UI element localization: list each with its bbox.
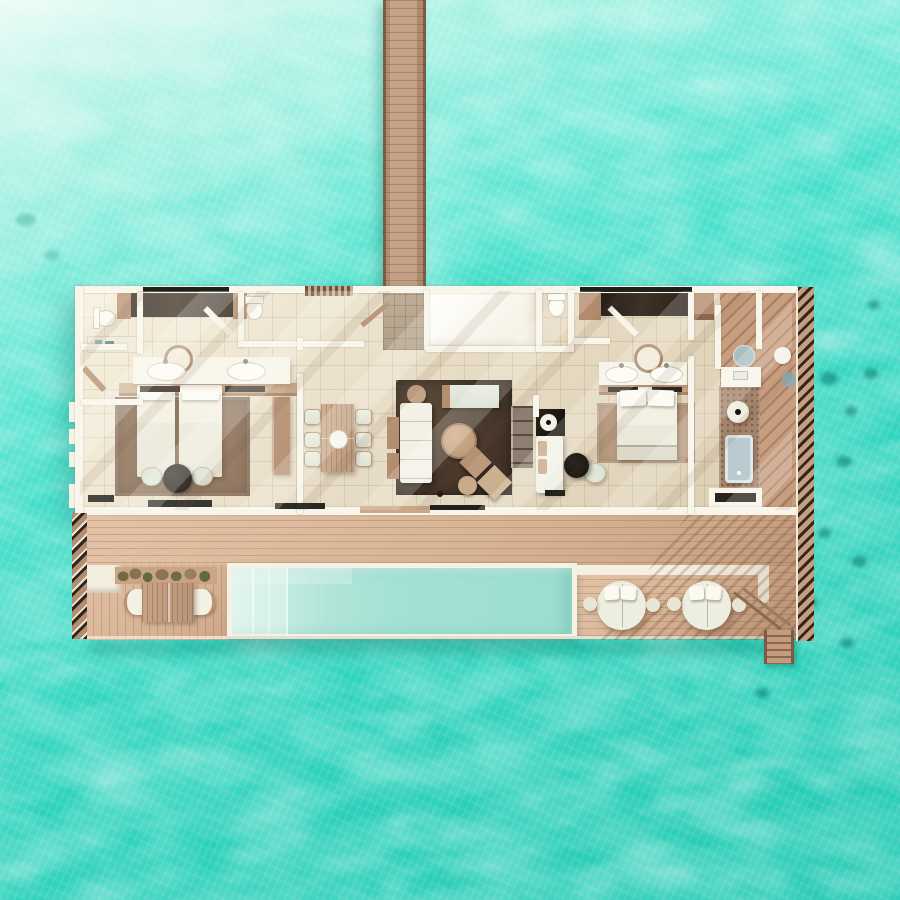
daybed-side-table [646, 598, 660, 612]
partition-wall [238, 341, 304, 347]
dining-sideboard [272, 397, 290, 475]
daybed-side-table [583, 597, 597, 611]
seagrass-patch [840, 638, 854, 648]
guest-sink [227, 362, 266, 381]
seagrass-patch [868, 300, 880, 309]
partition-wall [688, 292, 694, 340]
guest-wardrobe [131, 293, 233, 317]
guest-wardrobe-side [117, 292, 131, 319]
window-slit [88, 495, 114, 502]
window-slit [430, 505, 485, 510]
daybed-pillow [689, 585, 705, 600]
guest-sink [147, 362, 186, 381]
bathtub [725, 435, 753, 483]
living-chaise [442, 385, 499, 408]
master-sink [605, 366, 638, 383]
shower-drain [782, 372, 797, 387]
scene-overwater-villa [0, 0, 900, 900]
bedroom-chair [141, 467, 162, 486]
outdoor-dining-table [142, 583, 194, 622]
sofa-side-table [387, 417, 399, 449]
partition-wall [137, 292, 143, 306]
louver-screen-right [796, 287, 814, 641]
side-stool [458, 476, 477, 495]
entry-vestibule-floor [383, 290, 428, 350]
dining-chair [304, 451, 321, 467]
chaise-wood-trim [442, 385, 450, 408]
foyer-floor [426, 290, 536, 348]
vanity-drawer [225, 386, 265, 392]
shower-stool [774, 347, 791, 364]
seagrass-patch [16, 214, 36, 226]
deck-planter [115, 567, 217, 584]
partition-wall [424, 290, 429, 350]
sea-ladder [764, 630, 794, 664]
daybed-pillow [706, 585, 722, 600]
partition-wall [688, 356, 694, 514]
partition-wall [426, 346, 538, 352]
faucet [163, 359, 168, 364]
bath-stool-center [735, 409, 741, 415]
master-wardrobe-side [579, 292, 601, 320]
lounge-cushion [538, 459, 547, 474]
window-slit [545, 490, 565, 496]
seagrass-patch [820, 372, 838, 385]
powder-room-toilet-tank [245, 296, 264, 304]
partition-wall [533, 395, 539, 417]
door-threshold [360, 506, 430, 513]
shower-partition [756, 291, 762, 349]
partition-wall [297, 374, 303, 514]
seagrass-patch [836, 456, 852, 467]
faucet [619, 363, 624, 368]
faucet [243, 359, 248, 364]
partition-wall [574, 338, 610, 344]
window-slit [580, 287, 692, 292]
bed-pillow [648, 390, 675, 407]
daybed-side-table [667, 597, 681, 611]
sofa [400, 403, 432, 483]
vanity-drawer [140, 386, 180, 392]
lounge-cushion [538, 441, 547, 456]
twin-bed [179, 385, 222, 477]
dining-chair [355, 451, 372, 467]
deck-water-shadow [90, 641, 790, 653]
partition-wall [137, 306, 143, 354]
seagrass-patch [845, 406, 857, 416]
dining-chair [355, 409, 372, 425]
centerpiece-bowl [329, 430, 348, 449]
side-stool [407, 385, 426, 404]
master-bath-shelf [691, 293, 714, 320]
shower-tray [733, 345, 755, 367]
partition-wall [81, 344, 127, 350]
bathtub-drain [737, 471, 741, 475]
seagrass-patch [864, 368, 878, 379]
seagrass-patch [852, 556, 867, 567]
bed-pillow [620, 390, 647, 407]
bed-foot-bench [617, 445, 677, 460]
master-sink [650, 366, 683, 383]
window-slit [148, 500, 212, 507]
window-slit [275, 503, 325, 509]
partition-wall [81, 399, 143, 405]
faucet [664, 363, 669, 368]
daybed-pillow [604, 585, 620, 600]
small-accent [437, 491, 443, 497]
daybed-pillow [621, 585, 637, 600]
bedroom-chair [192, 467, 213, 486]
powder-room-toilet-tank [547, 293, 566, 301]
bath-bench-slat [715, 493, 756, 502]
sofa-side-table [387, 453, 399, 479]
jetty-walkway [383, 0, 426, 292]
guest-toilet-tank [93, 307, 100, 329]
partition-wall [536, 290, 542, 352]
partition-wall [238, 292, 244, 347]
partition-wall [536, 346, 574, 352]
shower-partition [715, 305, 721, 369]
dining-chair [304, 432, 321, 448]
outdoor-bench [191, 589, 215, 615]
bath-faucet [733, 371, 748, 380]
dining-chair [355, 432, 372, 448]
black-ottoman [163, 464, 192, 493]
round-black-table [564, 453, 589, 478]
entry-doormat [305, 286, 353, 296]
partition-wall [302, 341, 364, 347]
minibar-sink-drain [546, 420, 551, 425]
seagrass-patch [818, 528, 831, 538]
tv-console [511, 406, 533, 468]
louver-screen-left [72, 513, 87, 639]
seagrass-patch [756, 688, 769, 698]
seagrass-patch [44, 250, 60, 260]
window-slit [143, 287, 229, 292]
dining-chair [304, 409, 321, 425]
pool-shallow-ledge [232, 568, 352, 584]
